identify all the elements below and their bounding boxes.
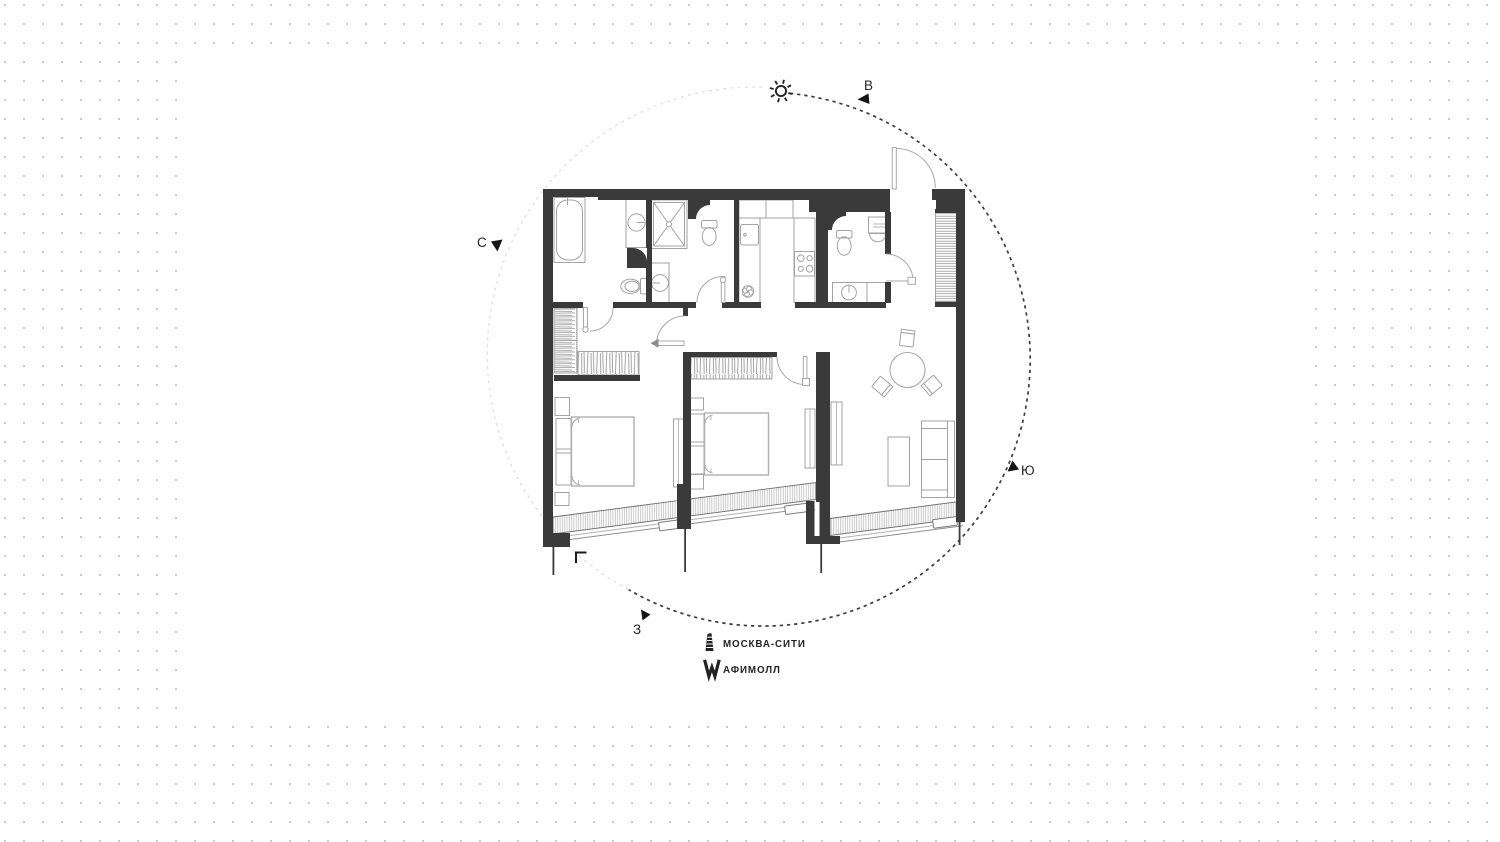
svg-text:В: В [864, 78, 873, 93]
svg-text:МОСКВА-СИТИ: МОСКВА-СИТИ [723, 639, 806, 650]
svg-text:С: С [477, 235, 487, 250]
svg-text:З: З [633, 622, 641, 637]
svg-text:Ю: Ю [1021, 463, 1035, 478]
svg-text:АФИМОЛЛ: АФИМОЛЛ [723, 665, 781, 676]
